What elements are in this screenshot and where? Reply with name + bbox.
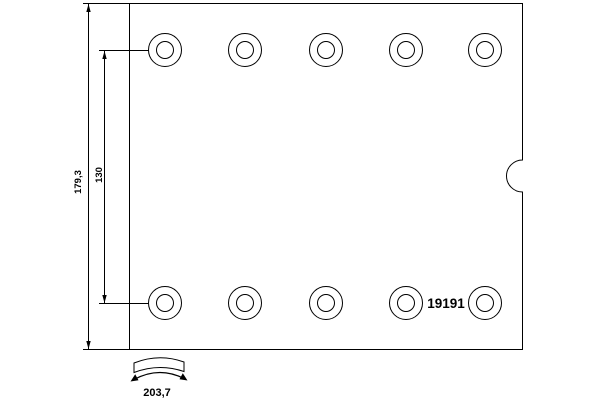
- rivet-hole-inner: [318, 295, 335, 312]
- rivet-hole-inner: [318, 42, 335, 59]
- rivet-hole-outer: [149, 34, 182, 67]
- rivet-hole-inner: [477, 295, 494, 312]
- rivet-hole-outer: [310, 34, 343, 67]
- brake-lining-drawing: 179,3 130 19191 203,7: [0, 0, 600, 400]
- extension-lines: [83, 4, 149, 350]
- dim-hole-row-spacing-label: 130: [94, 167, 105, 183]
- dim-arrow-down-icon: [102, 295, 106, 303]
- rivet-hole-outer: [149, 287, 182, 320]
- part-number-label: 19191: [427, 296, 465, 311]
- dim-overall-height-label: 179,3: [73, 170, 84, 194]
- rivet-hole-outer: [390, 287, 423, 320]
- arc-length-arrow-line: [134, 372, 184, 379]
- dim-arc-length-label: 203,7: [143, 387, 171, 399]
- arc-length-symbol: 203,7: [131, 358, 188, 399]
- dim-hole-row-spacing: 130: [94, 51, 107, 304]
- rivet-hole-inner: [157, 42, 174, 59]
- rivet-hole-inner: [398, 295, 415, 312]
- curved-lining-band-icon: [134, 358, 184, 373]
- dim-arrow-up-icon: [86, 4, 90, 12]
- rivet-hole-outer: [469, 34, 502, 67]
- technical-drawing-canvas: 179,3 130 19191 203,7: [0, 0, 600, 400]
- rivet-hole-inner: [237, 295, 254, 312]
- rivet-hole-outer: [390, 34, 423, 67]
- dim-arrow-up-icon: [102, 51, 106, 59]
- rivet-holes-top-row: [149, 34, 502, 67]
- rivet-hole-inner: [237, 42, 254, 59]
- dim-overall-height: 179,3: [73, 4, 91, 350]
- dim-arrow-down-icon: [86, 341, 90, 349]
- rivet-hole-inner: [157, 295, 174, 312]
- rivet-hole-inner: [398, 42, 415, 59]
- rivet-hole-inner: [477, 42, 494, 59]
- rivet-hole-outer: [469, 287, 502, 320]
- rivet-hole-outer: [310, 287, 343, 320]
- rivet-hole-outer: [229, 34, 262, 67]
- rivet-hole-outer: [229, 287, 262, 320]
